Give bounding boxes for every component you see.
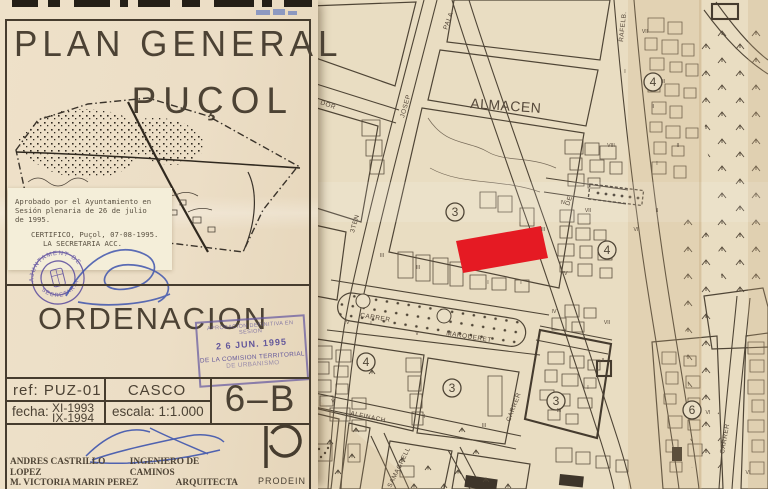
prodein-logo: PRODEIN	[256, 420, 308, 486]
parcel-roman-numeral: II	[656, 208, 659, 214]
parcel-roman-numeral: I	[624, 69, 625, 75]
parcel-roman-numeral: V	[415, 331, 419, 337]
credit-name: M. VICTORIA MARIN PEREZ	[10, 478, 138, 489]
parcel-roman-numeral: VII	[642, 29, 648, 35]
zone-cell: CASCO	[104, 382, 210, 399]
parcel-roman-numeral: V	[331, 399, 335, 405]
zone-number: 4	[363, 355, 370, 369]
approval-note-line: Aprobado por el Ayuntamiento en	[15, 197, 172, 206]
parcel-roman-numeral: IV	[563, 271, 568, 277]
commission-stamp-date: 2 6 JUN. 1995	[198, 335, 304, 352]
credit-role: ARQUITECTA	[176, 478, 238, 489]
parcel-roman-numeral: VII	[585, 208, 591, 214]
prodein-logo-icon	[256, 420, 308, 470]
approval-note-line: Sesión plenaria de 26 de julio	[15, 206, 172, 215]
parcel-roman-numeral: III	[482, 423, 486, 429]
parcel-roman-numeral: IV	[345, 320, 350, 326]
parcel-roman-numeral: I	[656, 161, 657, 167]
parcel-roman-numeral: III	[541, 227, 545, 233]
scanned-plan-sheet: ALMACENDORJOSEPPALA3TENDECARRERMARQUERET…	[0, 0, 768, 489]
fecha-label: fecha:	[12, 404, 49, 419]
prodein-logo-text: PRODEIN	[256, 476, 308, 486]
ref-cell: ref: PUZ-01	[13, 382, 102, 399]
parcel-roman-numeral: I	[587, 385, 588, 391]
title-block-sheet: PLAN GENERAL PUÇOL	[0, 0, 318, 489]
credit-role: INGENIERO DE CAMINOS	[130, 457, 238, 478]
credit-row: M. VICTORIA MARIN PEREZ ARQUITECTA	[10, 478, 238, 489]
parcel-roman-numeral: I	[370, 321, 371, 327]
parcel-roman-numeral: VIII	[607, 143, 615, 149]
zone-number: 4	[650, 75, 657, 89]
table-line	[5, 400, 210, 402]
sheet-code: 6–B	[212, 378, 309, 420]
zone-number: 3	[449, 381, 456, 395]
parcel-roman-numeral: II	[652, 104, 655, 110]
parcel-roman-numeral: I	[520, 280, 521, 286]
parcel-roman-numeral: III	[557, 408, 561, 414]
parcel-roman-numeral: II	[423, 414, 426, 420]
parcel-roman-numeral: II	[677, 143, 680, 149]
zone-number: 3	[553, 394, 560, 408]
plan-title-line1: PLAN GENERAL	[14, 24, 342, 66]
parcel-roman-numeral: III	[380, 253, 384, 259]
parcel-roman-numeral: VI	[706, 410, 711, 416]
ref-label: ref:	[13, 382, 39, 399]
zone-number: 4	[604, 243, 611, 257]
parcel-roman-numeral: VII	[604, 320, 610, 326]
parcel-roman-numeral: IV	[552, 309, 557, 315]
zone-number: 3	[452, 205, 459, 219]
section-divider	[5, 284, 309, 286]
parcel-roman-numeral: I	[487, 280, 488, 286]
parcel-roman-numeral: III	[661, 79, 665, 85]
credit-name: ANDRES CASTRILLO LOPEZ	[10, 457, 130, 478]
parcel-roman-numeral: VI	[746, 470, 751, 476]
parcel-roman-numeral: IV	[561, 200, 566, 206]
approval-note-line: de 1995.	[15, 215, 172, 224]
parcel-roman-numeral: II	[602, 358, 605, 364]
zone-number: 6	[689, 403, 696, 417]
credits-list: ANDRES CASTRILLO LOPEZ INGENIERO DE CAMI…	[10, 457, 238, 489]
credit-row: ANDRES CASTRILLO LOPEZ INGENIERO DE CAMI…	[10, 457, 238, 478]
parcel-roman-numeral: III	[416, 265, 420, 271]
ref-value: PUZ-01	[44, 382, 102, 399]
parcel-roman-numeral: VI	[634, 227, 639, 233]
